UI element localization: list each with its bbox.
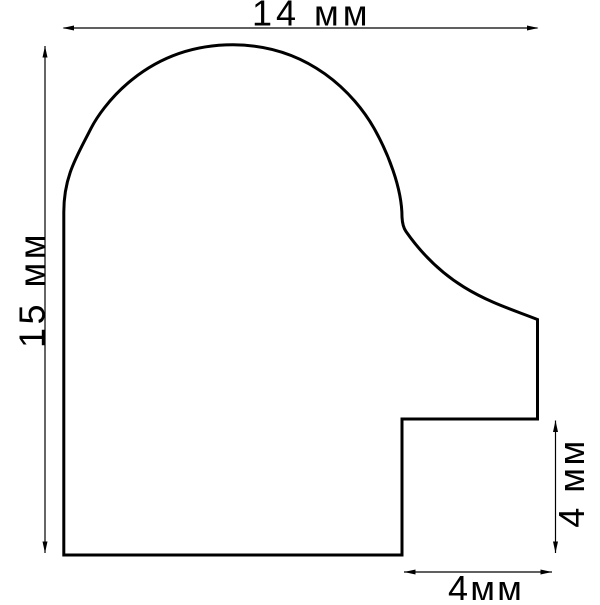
svg-text:15 мм: 15 мм bbox=[12, 231, 53, 348]
svg-text:4 мм: 4 мм bbox=[551, 438, 592, 528]
svg-text:14 мм: 14 мм bbox=[252, 0, 372, 34]
svg-text:4мм: 4мм bbox=[448, 568, 524, 600]
